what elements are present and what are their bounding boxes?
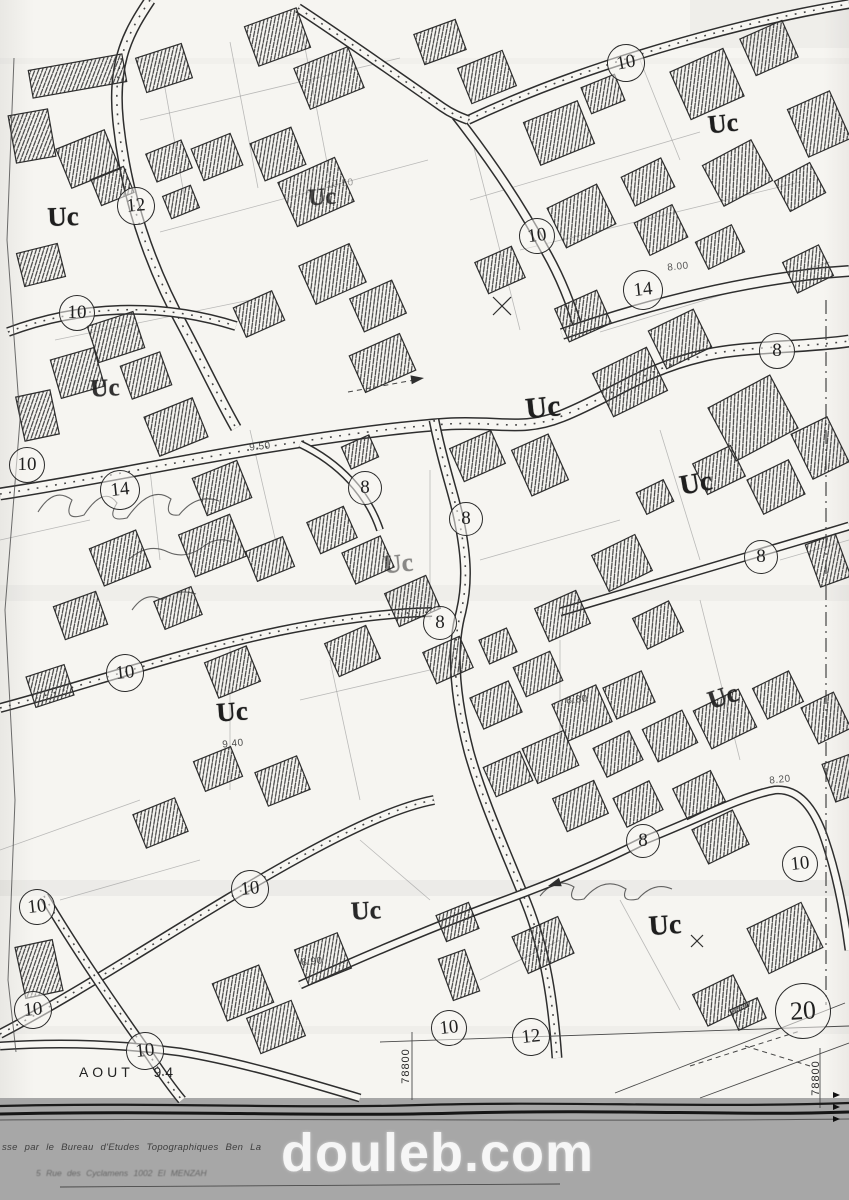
zone-label: Uc	[704, 678, 742, 716]
grid-coordinate-label: 78800	[810, 1060, 822, 1096]
elevation-mark: 9.50	[249, 440, 272, 453]
road-width-badge: 8	[744, 540, 778, 574]
elevation-mark: 8.80	[566, 693, 589, 706]
road-width-badge: 14	[621, 268, 665, 312]
map-labels-layer: UcUcUcUcUcUcUcUcUcUcUc121010101481014888…	[0, 0, 849, 1200]
road-width-badge: 10	[17, 887, 57, 927]
elevation-mark: 9.40	[222, 737, 245, 750]
road-width-badge: 20	[773, 981, 833, 1041]
zone-label: Uc	[90, 374, 121, 403]
elevation-mark: 8.90	[301, 955, 324, 968]
elevation-mark: 8.00	[667, 260, 690, 273]
road-width-badge: 10	[9, 447, 45, 483]
zone-label: Uc	[648, 909, 683, 943]
zone-label: Uc	[706, 107, 739, 140]
road-width-badge: 10	[604, 41, 648, 85]
zone-label: Uc	[524, 389, 562, 426]
grid-coordinate-label: 78800	[400, 1048, 412, 1084]
zone-label: Uc	[677, 465, 715, 502]
scanned-zoning-map-page: UcUcUcUcUcUcUcUcUcUcUc121010101481014888…	[0, 0, 849, 1200]
road-width-badge: 12	[115, 185, 156, 226]
road-width-badge: 8	[348, 471, 382, 505]
map-date-note: AOUT 94	[79, 1064, 177, 1080]
road-width-badge: 10	[429, 1008, 469, 1048]
road-width-badge: 10	[780, 844, 820, 884]
road-width-badge: 12	[510, 1016, 552, 1058]
road-width-badge: 10	[517, 216, 558, 257]
road-width-badge: 8	[423, 606, 457, 640]
road-width-badge: 8	[759, 333, 795, 369]
zone-label: Uc	[381, 547, 414, 580]
road-width-badge: 10	[12, 989, 54, 1031]
zone-label: Uc	[350, 895, 382, 927]
elevation-mark: 10.50	[326, 177, 355, 191]
road-width-badge: 10	[104, 652, 146, 694]
road-width-badge: 8	[449, 502, 483, 536]
road-width-badge: 10	[229, 868, 271, 910]
road-width-badge: 8	[626, 824, 660, 858]
zone-label: Uc	[215, 695, 249, 728]
elevation-mark: 8.20	[769, 773, 792, 786]
footer-credit-line-1: sse par le Bureau d'Etudes Topographique…	[2, 1142, 261, 1153]
footer-credit-line-2: 5 Rue des Cyclamens 1002 El MENZAH	[36, 1168, 207, 1178]
road-width-badge: 10	[59, 295, 95, 331]
zone-label: Uc	[47, 201, 80, 233]
watermark: douleb.com	[281, 1122, 594, 1184]
road-width-badge: 14	[98, 468, 142, 512]
